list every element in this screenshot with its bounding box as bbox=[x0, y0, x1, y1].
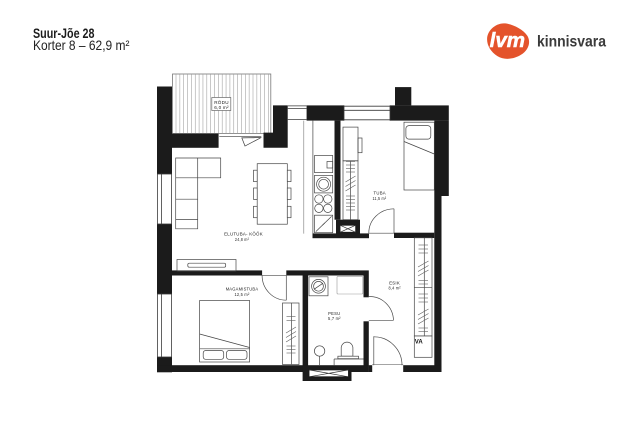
svg-text:VA: VA bbox=[415, 339, 423, 346]
svg-text:12,5 m²: 12,5 m² bbox=[235, 292, 250, 297]
svg-text:24,8 m²: 24,8 m² bbox=[235, 237, 249, 242]
svg-text:lvm: lvm bbox=[490, 29, 525, 52]
svg-text:MAGAMISTUBA: MAGAMISTUBA bbox=[226, 287, 259, 292]
svg-text:TUBA: TUBA bbox=[374, 191, 387, 196]
svg-text:5,7 m²: 5,7 m² bbox=[328, 316, 341, 321]
svg-text:Korter 8 – 62,9 m²: Korter 8 – 62,9 m² bbox=[33, 38, 130, 53]
svg-text:kinnisvara: kinnisvara bbox=[537, 34, 606, 51]
svg-text:8,4 m²: 8,4 m² bbox=[389, 286, 401, 291]
svg-text:6,0 m²: 6,0 m² bbox=[214, 105, 229, 110]
svg-text:11,5 m²: 11,5 m² bbox=[373, 196, 387, 201]
svg-text:ELUTUBA- KÖÖK: ELUTUBA- KÖÖK bbox=[224, 231, 263, 237]
svg-text:RÕDU: RÕDU bbox=[214, 99, 229, 105]
